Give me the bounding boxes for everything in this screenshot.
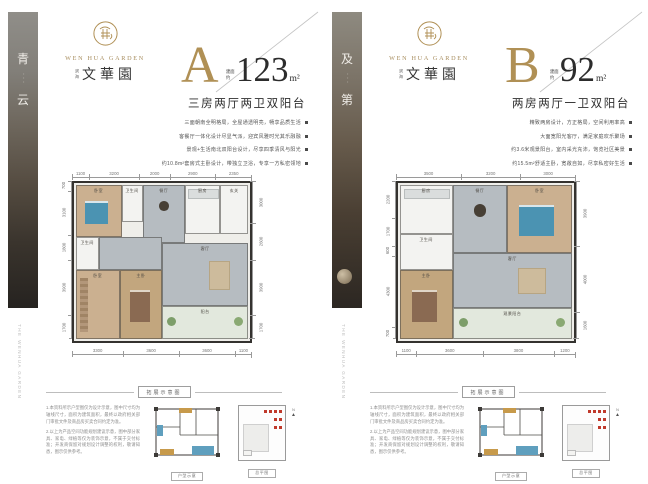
feature-bullet-icon bbox=[305, 121, 308, 124]
room: 卫生间 bbox=[76, 237, 99, 270]
side-caption: THE WENHUA GARDEN bbox=[8, 324, 22, 404]
brand-prefix: 滨海 bbox=[74, 69, 80, 79]
dim-label: 3600 bbox=[179, 348, 235, 356]
site-plan-label: 总平图 bbox=[248, 469, 276, 478]
plan-subtitle: 两房两厅一卫双阳台 bbox=[496, 95, 646, 111]
site-unit-marker bbox=[279, 426, 282, 429]
bed-dark-icon bbox=[412, 290, 437, 322]
dim-label: 3200 bbox=[89, 171, 139, 179]
site-unit-marker bbox=[274, 426, 277, 429]
room: 玄关 bbox=[220, 185, 248, 234]
feature-bullet-icon bbox=[305, 162, 308, 165]
feature-item: 约3.6米观景阳台，室内采光充沛，饱览社区美景 bbox=[422, 146, 632, 153]
site-unit-marker bbox=[269, 410, 272, 413]
site-unit-marker bbox=[279, 418, 282, 421]
feature-bullet-icon bbox=[629, 121, 632, 124]
brand-name-en: WEN HUA GARDEN bbox=[370, 55, 488, 62]
dim-label: 2350 bbox=[215, 171, 252, 179]
strip-dots: ··· bbox=[20, 73, 26, 85]
dim-label: 700 bbox=[56, 181, 72, 191]
side-caption: THE WENHUA GARDEN bbox=[332, 324, 346, 404]
site-plan bbox=[238, 405, 286, 461]
room-label: 餐厅 bbox=[144, 188, 184, 194]
room: 厨房 bbox=[185, 185, 220, 234]
site-unit-marker bbox=[279, 410, 282, 413]
plan-type-letter: A bbox=[181, 40, 219, 92]
dim-label: 4000 bbox=[576, 246, 592, 313]
brochure-page: 青 ··· 云 THE WENHUA GARDEN WEN HUA GARDEN… bbox=[0, 0, 648, 484]
room: 卫生间 bbox=[122, 185, 143, 223]
dim-label: 2600 bbox=[252, 223, 268, 260]
site-building-footprint bbox=[243, 424, 269, 452]
dim-label: 1600 bbox=[576, 312, 592, 339]
sofa-icon bbox=[518, 268, 546, 293]
schematic-title: 拓展示意图 bbox=[138, 386, 191, 398]
room: 餐厅 bbox=[143, 185, 185, 243]
dims-top-row: 350032003000 bbox=[380, 166, 592, 178]
room-label: 厨房 bbox=[401, 188, 452, 194]
note-item: 2.以上为产品空间功能规划建议示意，图中部分家具、家电、绿植等仅为装饰示意，不属… bbox=[370, 429, 464, 457]
feature-bullet-icon bbox=[305, 135, 308, 138]
room-label: 卫生间 bbox=[123, 188, 142, 194]
dim-label: 3500 bbox=[396, 171, 461, 179]
dims-bottom-row: 1100360038001200 bbox=[380, 343, 592, 355]
table-icon bbox=[159, 201, 169, 211]
dim-label: 1100 bbox=[396, 348, 416, 356]
floorplan-panel: 青 ··· 云 THE WENHUA GARDEN WEN HUA GARDEN… bbox=[0, 0, 324, 484]
area-group: 建面约 123 m² bbox=[226, 56, 300, 85]
feature-text: 精致两房设计，方正格局，空间利用率高 bbox=[530, 119, 625, 126]
mini-floorplan-label: 户型示意 bbox=[495, 472, 527, 481]
site-building-footprint bbox=[567, 424, 593, 452]
plan-type-letter: B bbox=[505, 40, 540, 92]
strip-dots: ··· bbox=[344, 73, 350, 85]
site-unit-marker bbox=[603, 410, 606, 413]
room-label: 卫生间 bbox=[77, 240, 98, 246]
strip-calligraphy-top: 及 bbox=[341, 50, 353, 67]
feature-bullet-icon bbox=[629, 135, 632, 138]
disclaimer-notes: 1.本资料所示户型图仅为设计示意，图中尺寸均为轴线尺寸，面积为建筑面积，最终以政… bbox=[370, 405, 464, 484]
site-unit-marker bbox=[593, 410, 596, 413]
interior-photo-strip: 及 ··· 第 bbox=[332, 12, 362, 308]
dim-label: 3000 bbox=[252, 181, 268, 223]
dim-label: 3900 bbox=[56, 260, 72, 315]
site-unit-marker bbox=[588, 410, 591, 413]
bed-dark-icon bbox=[130, 290, 150, 322]
schematic-header: 拓展示意图 bbox=[370, 386, 606, 398]
mini-floorplan-wrap: 户型示意 拓展面积赠送面积 bbox=[148, 405, 226, 484]
area-value: 92 bbox=[560, 56, 595, 85]
site-lot-marker bbox=[243, 450, 252, 456]
feature-bullet-icon bbox=[629, 162, 632, 165]
floor-plan: 卧室卫生间餐厅厨房玄关卫生间卧室主卧客厅阳台 bbox=[72, 181, 252, 343]
dim-label: 2900 bbox=[170, 171, 215, 179]
logo-emblem-icon bbox=[92, 20, 119, 47]
disclaimer-notes: 1.本资料所示户型图仅为设计示意，图中尺寸均为轴线尺寸，面积为建筑面积，最终以政… bbox=[46, 405, 140, 484]
plan-subtitle: 三房两厅两卫双阳台 bbox=[172, 95, 322, 111]
dim-label: 3300 bbox=[72, 348, 123, 356]
dim-label: 2200 bbox=[380, 181, 396, 218]
strip-calligraphy-bottom: 第 bbox=[341, 91, 353, 108]
area-group: 建面约 92 m² bbox=[550, 56, 606, 85]
feature-text: 景观+生活南北双阳台设计，尽享四季清风与阳光 bbox=[186, 146, 301, 153]
room-label: 卧室 bbox=[77, 273, 119, 279]
schematic-header: 拓展示意图 bbox=[46, 386, 282, 398]
site-unit-marker bbox=[274, 410, 277, 413]
dim-label: 3600 bbox=[416, 348, 483, 356]
feature-item: 三面朝南全明格局，全屋通透明亮，畅享品质生活 bbox=[98, 119, 308, 126]
room-label: 玄关 bbox=[221, 188, 247, 194]
dim-label: 1100 bbox=[72, 171, 89, 179]
floor-plan-figure: 350032003000 220017006004300700 厨房餐厅卧室卫生… bbox=[380, 166, 592, 378]
room: 卧室 bbox=[76, 270, 120, 340]
site-plan-wrap: N▲ 总平图 bbox=[234, 405, 290, 484]
schematic-section: 拓展示意图 1.本资料所示户型图仅为设计示意，图中尺寸均为轴线尺寸，面积为建筑面… bbox=[370, 386, 606, 484]
brand-logo: WEN HUA GARDEN 滨海 文華園 bbox=[370, 20, 488, 84]
site-unit-marker bbox=[264, 410, 267, 413]
dim-label: 3800 bbox=[483, 348, 554, 356]
floor-plan: 厨房餐厅卧室卫生间客厅主卧观景阳台 bbox=[396, 181, 576, 343]
dims-top-row: 11003200200029002350 bbox=[56, 166, 268, 178]
feature-text: 大面宽阳光客厅，满足家庭欢乐聚场 bbox=[540, 133, 625, 140]
room-label: 主卧 bbox=[401, 273, 452, 279]
note-item: 1.本资料所示户型图仅为设计示意，图中尺寸均为轴线尺寸，面积为建筑面积，最终以政… bbox=[370, 405, 464, 426]
dim-label: 1100 bbox=[235, 348, 252, 356]
room-label: 阳台 bbox=[163, 309, 247, 315]
note-item: 2.以上为产品空间功能规划建议示意，图中部分家具、家电、绿植等仅为装饰示意，不属… bbox=[46, 429, 140, 457]
site-lot-marker bbox=[567, 450, 576, 456]
site-unit-marker bbox=[603, 418, 606, 421]
dims-left: 7003100180039001700 bbox=[56, 181, 72, 339]
brand-name-cn: 文華園 bbox=[82, 64, 136, 84]
dim-label: 1200 bbox=[554, 348, 576, 356]
room: 阳台 bbox=[162, 306, 248, 339]
site-unit-marker bbox=[598, 418, 601, 421]
room: 观景阳台 bbox=[453, 308, 573, 340]
dim-label: 600 bbox=[380, 246, 396, 256]
dims-bottom-row: 3300360036001100 bbox=[56, 343, 268, 355]
room-label: 卧室 bbox=[508, 188, 571, 194]
dim-label: 3000 bbox=[520, 171, 576, 179]
dims-top: 11003200200029002350 bbox=[72, 166, 252, 178]
mini-floorplan-label: 户型示意 bbox=[171, 472, 203, 481]
room bbox=[99, 237, 162, 270]
dim-label: 1700 bbox=[56, 315, 72, 339]
brand-prefix: 滨海 bbox=[398, 69, 404, 79]
floor-plan-figure: 11003200200029002350 7003100180039001700… bbox=[56, 166, 268, 378]
area-prefix-label: 建面约 bbox=[226, 69, 236, 79]
strip-calligraphy-top: 青 bbox=[17, 50, 29, 67]
compass-icon: N▲ bbox=[291, 409, 296, 418]
feature-text: 三面朝南全明格局，全屋通透明亮，畅享品质生活 bbox=[184, 119, 301, 126]
mini-floorplan-wrap: 户型示意 拓展面积赠送面积 bbox=[472, 405, 550, 484]
dim-label: 3200 bbox=[461, 171, 520, 179]
compass-icon: N▲ bbox=[615, 409, 620, 418]
area-prefix-label: 建面约 bbox=[550, 69, 560, 79]
site-unit-marker bbox=[603, 426, 606, 429]
room: 主卧 bbox=[120, 270, 162, 340]
mini-floorplan bbox=[150, 405, 224, 459]
dims-bottom: 3300360036001100 bbox=[72, 343, 252, 355]
dim-label: 3900 bbox=[252, 260, 268, 315]
room-label: 卧室 bbox=[77, 188, 121, 194]
area-value: 123 bbox=[236, 56, 289, 85]
dims-top: 350032003000 bbox=[396, 166, 576, 178]
dims-left: 220017006004300700 bbox=[380, 181, 396, 339]
ward-icon bbox=[80, 278, 88, 332]
room: 卫生间 bbox=[400, 234, 453, 270]
feature-item: 景观+生活南北双阳台设计，尽享四季清风与阳光 bbox=[98, 146, 308, 153]
schematic-section: 拓展示意图 1.本资料所示户型图仅为设计示意，图中尺寸均为轴线尺寸，面积为建筑面… bbox=[46, 386, 282, 484]
site-unit-marker bbox=[598, 410, 601, 413]
site-unit-marker bbox=[274, 418, 277, 421]
room-label: 观景阳台 bbox=[454, 311, 572, 317]
table-icon bbox=[474, 204, 487, 217]
feature-item: 精致两房设计，方正格局，空间利用率高 bbox=[422, 119, 632, 126]
area-unit: m² bbox=[290, 74, 300, 84]
room: 餐厅 bbox=[453, 185, 508, 253]
bed-blue-icon bbox=[85, 201, 109, 224]
dim-label: 3600 bbox=[123, 348, 179, 356]
room-label: 客厅 bbox=[454, 256, 572, 262]
room-label: 餐厅 bbox=[454, 188, 507, 194]
room: 卧室 bbox=[507, 185, 572, 253]
schematic-title: 拓展示意图 bbox=[462, 386, 515, 398]
room: 主卧 bbox=[400, 270, 453, 340]
site-plan bbox=[562, 405, 610, 461]
feature-text: 约3.6米观景阳台，室内采光充沛，饱览社区美景 bbox=[511, 146, 625, 153]
feature-item: 客餐厅一体化设计尽显气派，迎宾风雅时光其乐融融 bbox=[98, 133, 308, 140]
dim-label: 4300 bbox=[380, 256, 396, 328]
room-label: 卫生间 bbox=[401, 237, 452, 243]
feature-bullet-icon bbox=[305, 148, 308, 151]
feature-bullet-icon bbox=[629, 148, 632, 151]
room-label: 客厅 bbox=[163, 246, 247, 252]
feature-list: 三面朝南全明格局，全屋通透明亮，畅享品质生活客餐厅一体化设计尽显气派，迎宾风雅时… bbox=[98, 119, 308, 173]
floorplan-panel: 及 ··· 第 THE WENHUA GARDEN WEN HUA GARDEN… bbox=[324, 0, 648, 484]
strip-calligraphy-bottom: 云 bbox=[17, 91, 29, 108]
bed-blue-icon bbox=[519, 205, 553, 235]
dims-bottom: 1100360038001200 bbox=[396, 343, 576, 355]
room: 客厅 bbox=[162, 243, 248, 306]
room-label: 主卧 bbox=[121, 273, 161, 279]
dim-label: 3900 bbox=[576, 181, 592, 246]
mini-floorplan bbox=[474, 405, 548, 459]
site-plan-wrap: N▲ 总平图 bbox=[558, 405, 614, 484]
room: 厨房 bbox=[400, 185, 453, 234]
room: 卧室 bbox=[76, 185, 122, 237]
room: 客厅 bbox=[453, 253, 573, 308]
brand-logo: WEN HUA GARDEN 滨海 文華園 bbox=[46, 20, 164, 84]
dim-label: 1700 bbox=[380, 218, 396, 246]
feature-list: 精致两房设计，方正格局，空间利用率高大面宽阳光客厅，满足家庭欢乐聚场约3.6米观… bbox=[422, 119, 632, 173]
dim-label: 3100 bbox=[56, 191, 72, 235]
feature-text: 客餐厅一体化设计尽显气派，迎宾风雅时光其乐融融 bbox=[179, 133, 301, 140]
dim-label: 1700 bbox=[252, 315, 268, 339]
brand-name-cn: 文華園 bbox=[406, 64, 460, 84]
feature-item: 大面宽阳光客厅，满足家庭欢乐聚场 bbox=[422, 133, 632, 140]
room-label: 厨房 bbox=[186, 188, 219, 194]
brand-name-en: WEN HUA GARDEN bbox=[46, 55, 164, 62]
dim-label: 1800 bbox=[56, 235, 72, 260]
dims-right: 390040001600 bbox=[576, 181, 592, 339]
dims-right: 3000260039001700 bbox=[252, 181, 268, 339]
note-item: 1.本资料所示户型图仅为设计示意，图中尺寸均为轴线尺寸，面积为建筑面积，最终以政… bbox=[46, 405, 140, 426]
site-unit-marker bbox=[598, 426, 601, 429]
sofa-icon bbox=[209, 261, 230, 290]
site-plan-label: 总平图 bbox=[572, 469, 600, 478]
dim-label: 2000 bbox=[139, 171, 170, 179]
logo-emblem-icon bbox=[416, 20, 443, 47]
interior-photo-strip: 青 ··· 云 bbox=[8, 12, 38, 308]
area-unit: m² bbox=[596, 74, 606, 84]
